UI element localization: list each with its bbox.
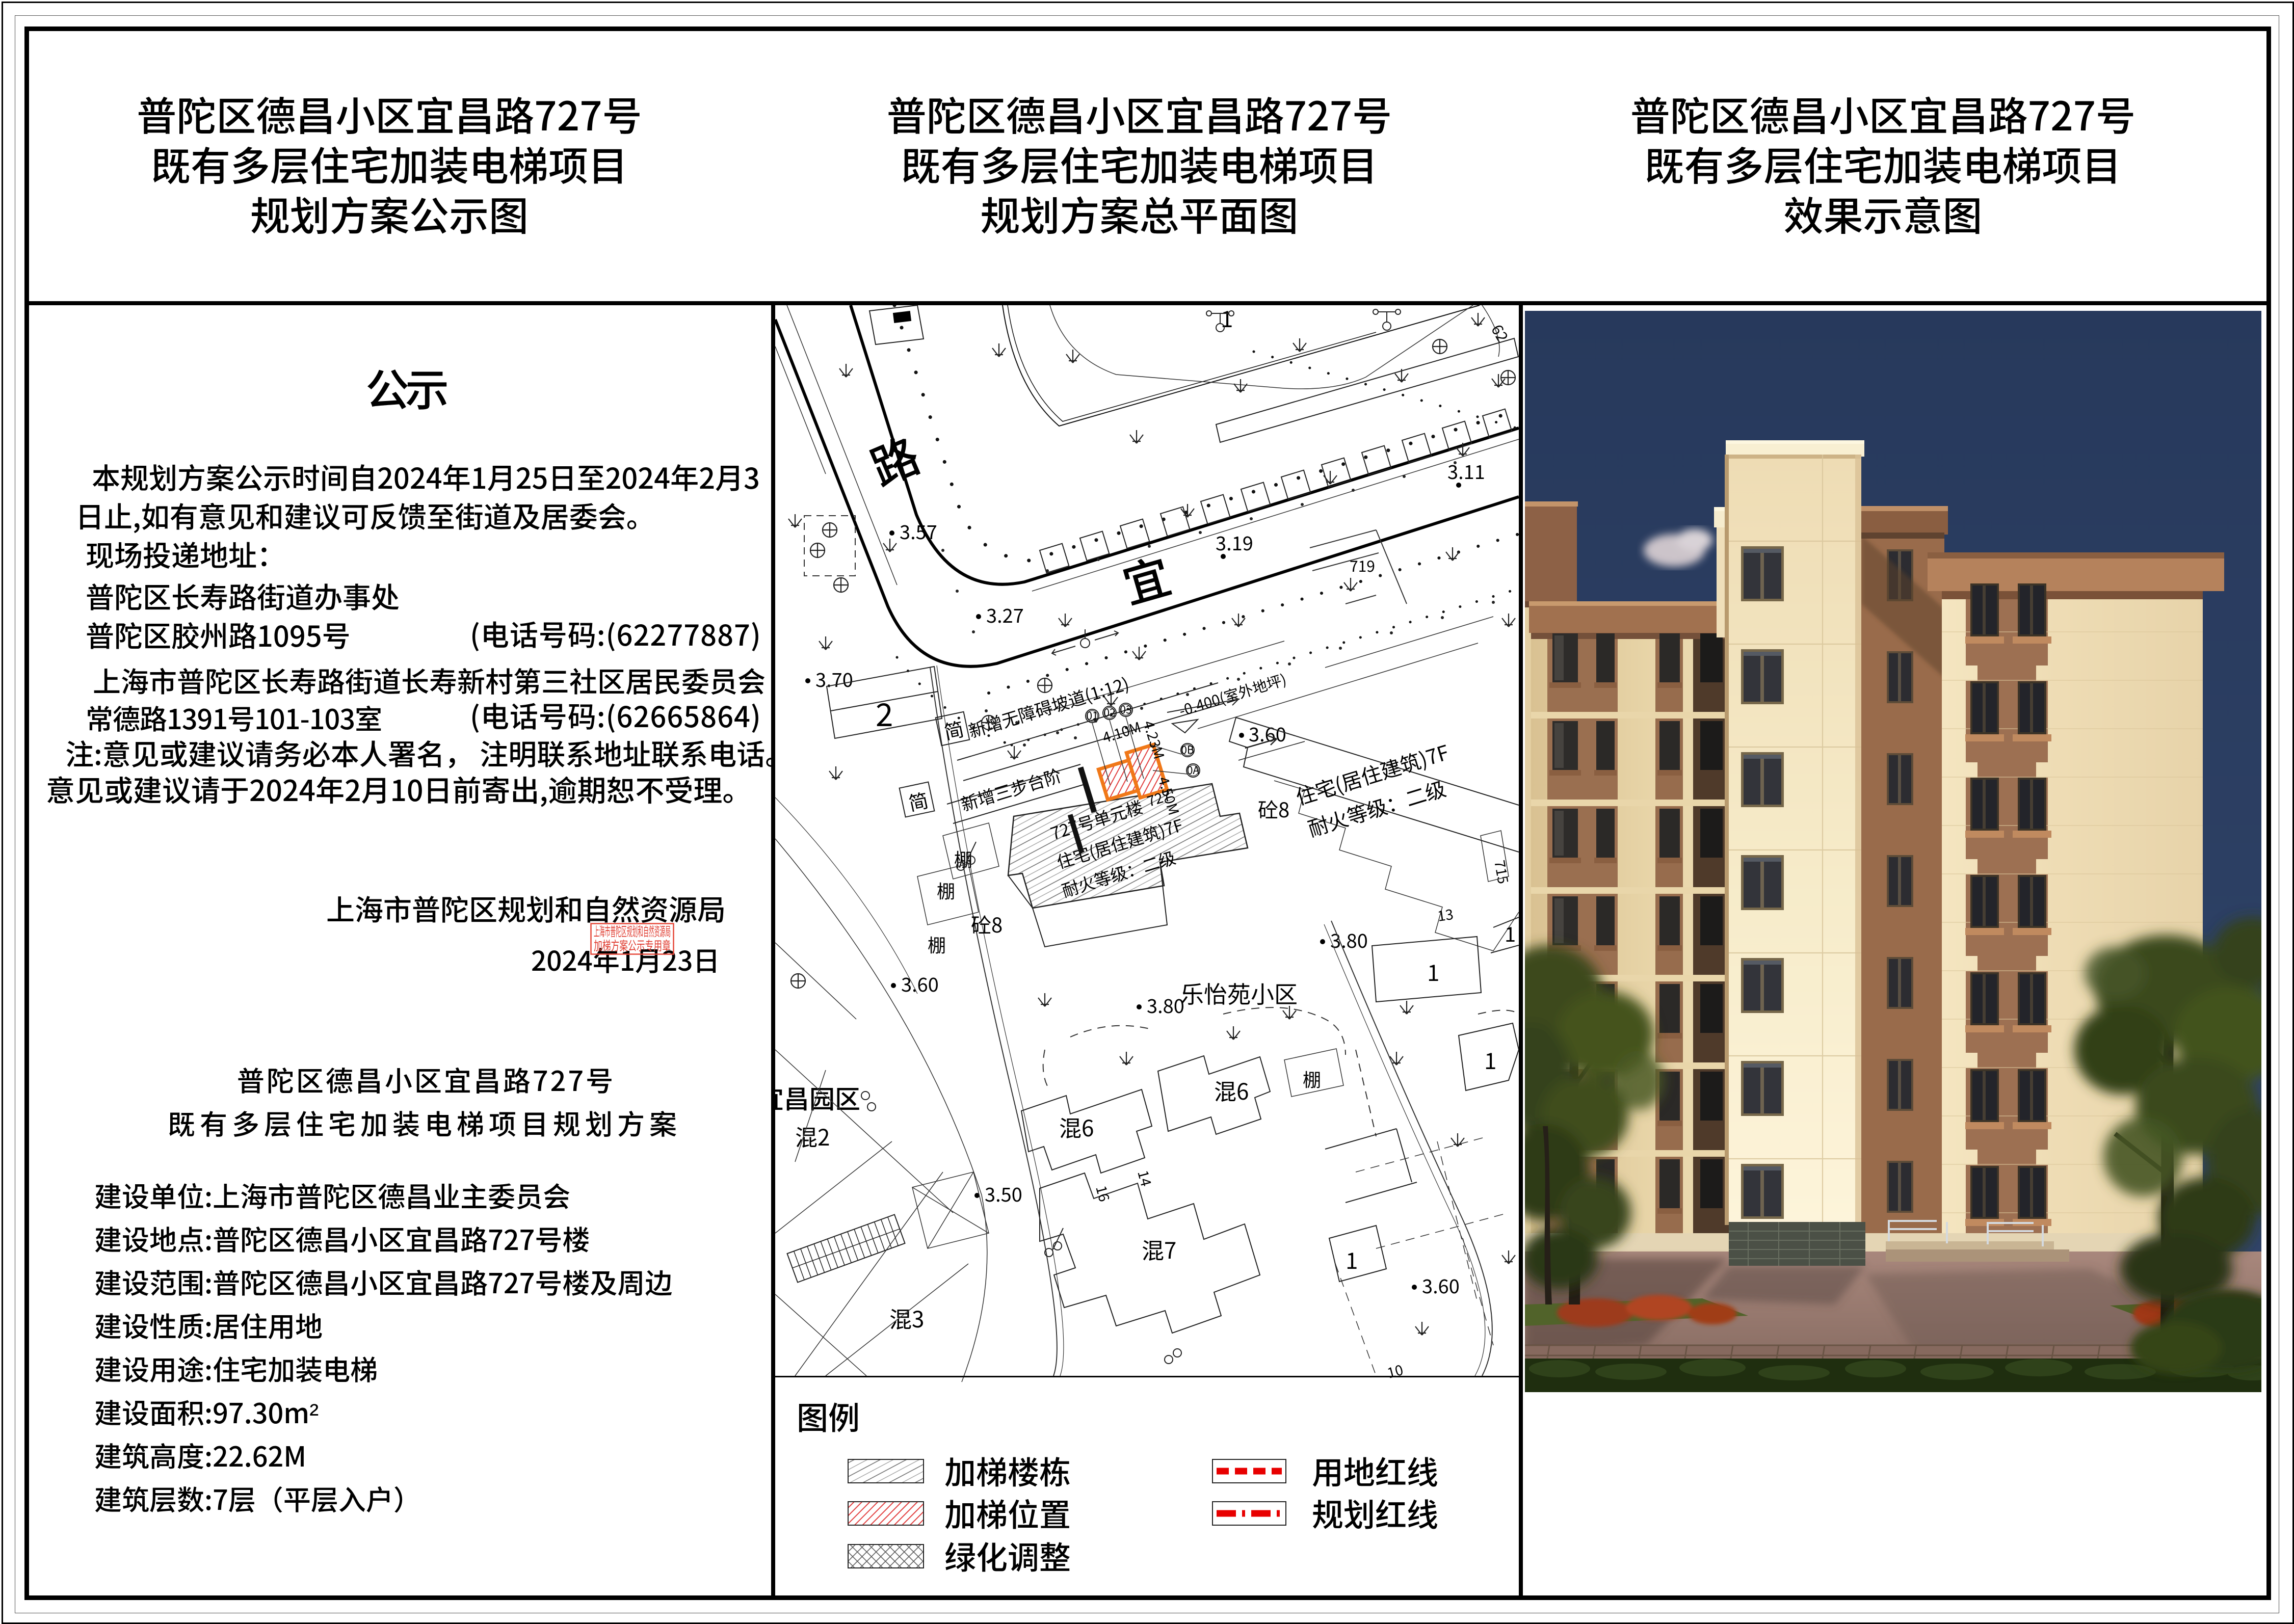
svg-text:混7: 混7 (1142, 1233, 1176, 1265)
svg-text:3.11: 3.11 (1447, 457, 1485, 485)
svg-text:宜: 宜 (1114, 539, 1178, 617)
svg-text:3.50: 3.50 (985, 1179, 1022, 1207)
svg-text:0B: 0B (1181, 742, 1194, 757)
svg-text:1: 1 (1221, 305, 1233, 334)
svg-text:绿化调整: 绿化调整 (944, 1532, 1071, 1578)
svg-text:2: 2 (876, 689, 893, 735)
svg-text:10: 10 (1385, 1359, 1405, 1383)
svg-text:棚: 棚 (1303, 1066, 1321, 1092)
svg-text:1: 1 (1346, 1243, 1358, 1275)
svg-text:16: 16 (1091, 1183, 1115, 1204)
svg-text:加梯方案公示专用章: 加梯方案公示专用章 (594, 936, 671, 954)
svg-text:3.60: 3.60 (1422, 1271, 1460, 1299)
svg-text:3.70: 3.70 (815, 664, 853, 693)
svg-text:719: 719 (1350, 554, 1375, 576)
svg-text:3.57: 3.57 (900, 517, 937, 545)
svg-text:图例: 图例 (797, 1393, 860, 1439)
svg-text:砼8: 砼8 (971, 909, 1003, 939)
svg-text:简: 简 (906, 785, 931, 816)
svg-text:-0.400(室外地坪): -0.400(室外地坪) (1176, 668, 1289, 721)
svg-text:01: 01 (1086, 708, 1098, 723)
svg-text:用地红线: 用地红线 (1312, 1447, 1438, 1493)
svg-text:混6: 混6 (1214, 1074, 1249, 1106)
svg-text:混3: 混3 (889, 1301, 924, 1334)
svg-text:规划红线: 规划红线 (1312, 1489, 1438, 1535)
svg-text:简: 简 (941, 713, 966, 745)
svg-text:3.27: 3.27 (986, 600, 1024, 628)
svg-text:路: 路 (859, 418, 929, 499)
svg-text:加梯楼栋: 加梯楼栋 (944, 1447, 1071, 1493)
svg-text:棚: 棚 (928, 931, 946, 957)
svg-text:乐怡苑小区: 乐怡苑小区 (1180, 976, 1298, 1010)
svg-text:新增三步台阶: 新增三步台阶 (958, 762, 1064, 816)
svg-text:1: 1 (1427, 955, 1439, 988)
svg-text:混6: 混6 (1059, 1110, 1094, 1143)
svg-text:3.80: 3.80 (1330, 925, 1368, 953)
svg-text:02: 02 (1103, 705, 1115, 720)
svg-text:棚: 棚 (937, 877, 955, 903)
svg-text:3.19: 3.19 (1216, 528, 1253, 556)
svg-text:0A: 0A (1187, 762, 1200, 778)
svg-text:宜昌园区: 宜昌园区 (775, 1079, 860, 1116)
svg-text:3.80: 3.80 (1147, 991, 1184, 1019)
svg-text:14: 14 (1133, 1168, 1157, 1188)
svg-text:1: 1 (1505, 918, 1516, 948)
svg-text:62: 62 (1487, 320, 1515, 346)
svg-text:1: 1 (1484, 1043, 1496, 1076)
svg-text:砼8: 砼8 (1258, 794, 1289, 823)
svg-text:03: 03 (1120, 702, 1131, 717)
svg-text:4.10M: 4.10M (1100, 716, 1143, 748)
svg-text:715: 715 (1490, 859, 1514, 886)
svg-text:加梯位置: 加梯位置 (944, 1489, 1071, 1535)
svg-text:13: 13 (1436, 903, 1455, 926)
